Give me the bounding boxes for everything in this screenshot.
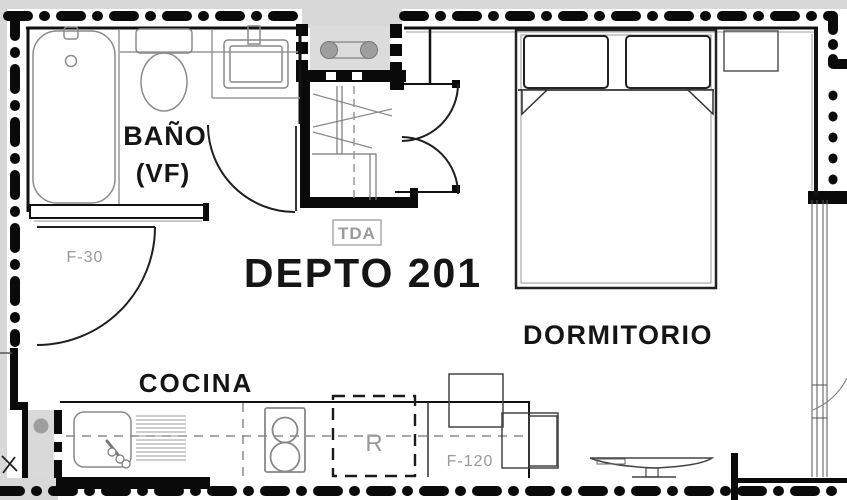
- glazing-lines: [812, 200, 827, 477]
- nightstand: [724, 31, 778, 71]
- closet-wall-bottom: [300, 197, 418, 208]
- closet-shelf-line: [313, 94, 392, 116]
- labels: BAÑO (VF) DEPTO 201 DORMITORIO COCINA F-…: [67, 120, 713, 470]
- shaft-wall-bottom: [296, 70, 406, 82]
- closet-shelf: [312, 154, 376, 200]
- drainboard: [136, 416, 186, 460]
- wall-junction-tick: [731, 453, 738, 500]
- shaft-exterior-gray: [302, 0, 402, 28]
- closet-door-upper: [402, 84, 458, 141]
- utility-shaft: [296, 24, 406, 82]
- shaft-wall-left: [296, 24, 308, 76]
- closet: [312, 86, 392, 200]
- curtain-swing: [813, 378, 847, 410]
- bedroom-label: DORMITORIO: [523, 320, 713, 350]
- kitchen-bottom-wall: [56, 477, 210, 489]
- unit-title: DEPTO 201: [244, 250, 482, 296]
- kitchen-label: COCINA: [139, 368, 254, 398]
- blanket-fold-left: [522, 90, 547, 114]
- toilet-tank: [136, 29, 192, 53]
- burner-large: [271, 443, 300, 472]
- bath-door-swing: [208, 125, 295, 212]
- entry-door-swing: [37, 227, 155, 345]
- chair-top: [449, 374, 503, 427]
- bath-sink: [224, 40, 288, 88]
- shaft-pipe-left: [321, 42, 338, 59]
- blanket-fold-right: [688, 90, 713, 114]
- toilet-bowl: [141, 53, 187, 111]
- closet-door-lower: [402, 137, 458, 194]
- tv-stand: [646, 468, 658, 477]
- shaft-pipe-right: [361, 42, 378, 59]
- bathroom-label: BAÑO: [123, 120, 207, 151]
- bathroom-threshold: [30, 205, 204, 218]
- closet-shelf-line: [313, 109, 392, 127]
- window-tag: F-120: [447, 453, 494, 470]
- entry-door-tag: F-30: [67, 249, 104, 266]
- tub-drain: [66, 56, 77, 67]
- bathroom-sublabel: (VF): [136, 158, 191, 188]
- burner-small: [273, 418, 298, 443]
- pillow-left: [524, 36, 608, 88]
- duct-pipe: [34, 419, 49, 434]
- floor-plan: BAÑO (VF) DEPTO 201 DORMITORIO COCINA F-…: [0, 0, 847, 500]
- closet-tag: TDA: [338, 224, 376, 243]
- shaft-wall-right: [390, 24, 402, 76]
- pillow-right: [626, 36, 710, 88]
- floor-plan-drawing: BAÑO (VF) DEPTO 201 DORMITORIO COCINA F-…: [0, 0, 847, 500]
- chair-right: [529, 416, 557, 466]
- refrigerator-tag: R: [365, 430, 382, 457]
- window-right: [812, 200, 847, 477]
- bedroom: [516, 30, 778, 477]
